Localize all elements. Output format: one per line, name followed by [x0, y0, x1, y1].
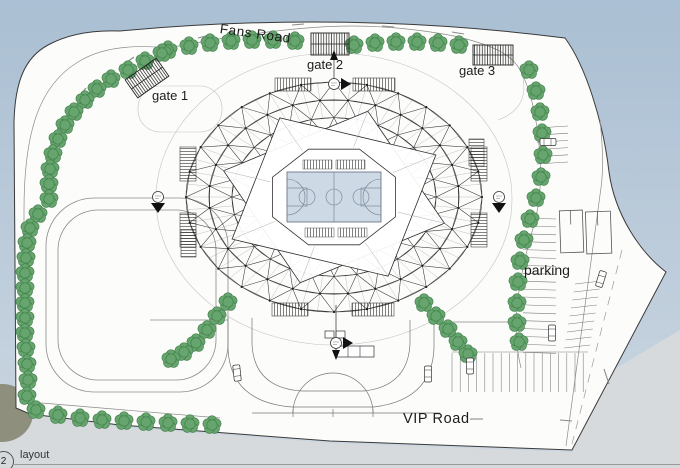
gate-2-stairs: [311, 33, 349, 55]
sheet-number: 2: [1, 456, 7, 467]
site-plan-viewport[interactable]: Fans Road gate 1 gate 2 gate 3 parking V…: [0, 0, 680, 468]
label-gate-2: gate 2: [307, 58, 343, 71]
gate-3-stairs: [473, 45, 513, 65]
title-underline: [12, 464, 680, 465]
sheet-title: layout: [20, 450, 49, 461]
label-vip-road: VIP Road: [403, 412, 470, 427]
label-gate-1: gate 1: [152, 89, 188, 102]
label-gate-3: gate 3: [459, 64, 495, 77]
label-parking: parking: [524, 263, 570, 277]
